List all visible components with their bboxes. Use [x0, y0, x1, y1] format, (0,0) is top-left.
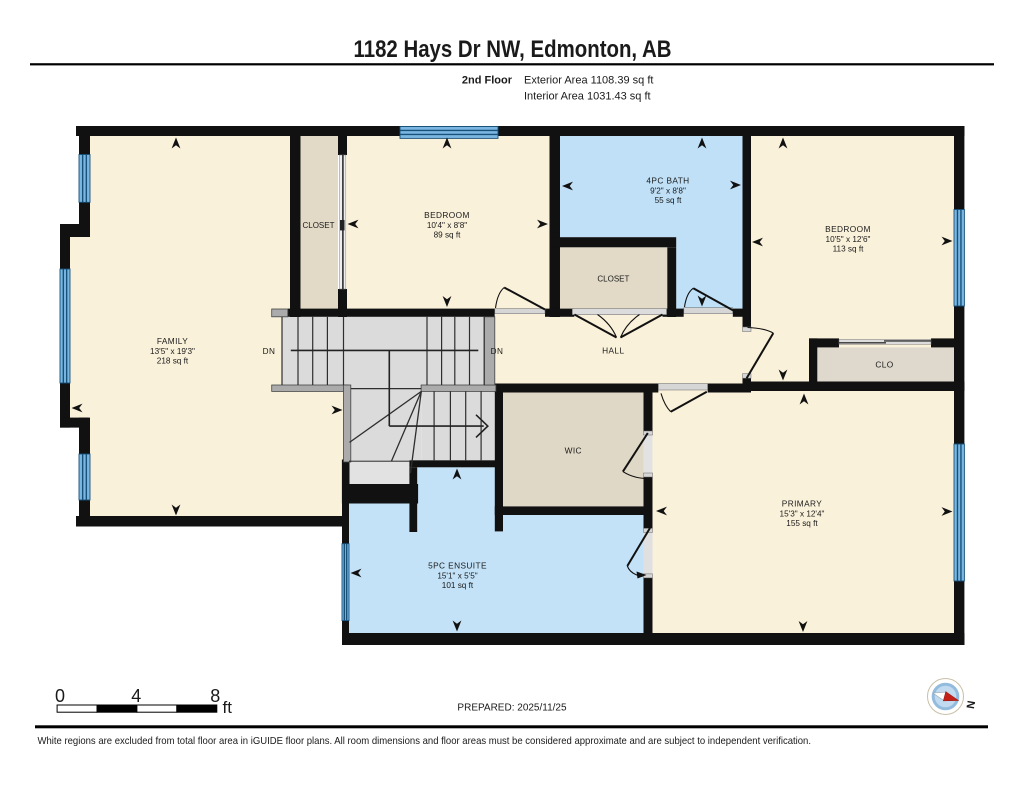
svg-text:155 sq ft: 155 sq ft — [786, 519, 818, 528]
svg-text:89 sq ft: 89 sq ft — [434, 231, 462, 240]
svg-text:ft: ft — [223, 698, 233, 717]
svg-text:HALL: HALL — [602, 346, 624, 356]
svg-text:15'1" x 5'5": 15'1" x 5'5" — [437, 572, 477, 581]
svg-text:218 sq ft: 218 sq ft — [157, 357, 189, 366]
svg-text:5PC ENSUITE: 5PC ENSUITE — [428, 561, 487, 571]
svg-text:PRIMARY: PRIMARY — [782, 499, 823, 509]
svg-text:2nd Floor: 2nd Floor — [462, 75, 513, 87]
svg-text:10'5" x 12'6": 10'5" x 12'6" — [826, 235, 871, 244]
svg-text:15'3" x 12'4": 15'3" x 12'4" — [780, 510, 825, 519]
svg-text:13'5" x 19'3": 13'5" x 19'3" — [150, 347, 195, 356]
svg-text:113 sq ft: 113 sq ft — [833, 245, 865, 254]
svg-text:FAMILY: FAMILY — [157, 336, 188, 346]
svg-text:101 sq ft: 101 sq ft — [442, 581, 474, 590]
svg-text:CLO: CLO — [875, 360, 893, 370]
svg-text:Interior Area 1031.43 sq ft: Interior Area 1031.43 sq ft — [524, 91, 651, 103]
svg-text:10'4" x 8'8": 10'4" x 8'8" — [427, 221, 467, 230]
svg-text:CLOSET: CLOSET — [597, 275, 629, 284]
svg-text:4PC BATH: 4PC BATH — [646, 176, 689, 186]
svg-text:8: 8 — [210, 686, 220, 706]
svg-text:DN: DN — [263, 347, 276, 356]
svg-text:9'2" x 8'8": 9'2" x 8'8" — [650, 187, 686, 196]
svg-text:BEDROOM: BEDROOM — [424, 210, 470, 220]
svg-text:White regions are excluded fro: White regions are excluded from total fl… — [38, 736, 812, 747]
svg-text:Exterior Area 1108.39 sq ft: Exterior Area 1108.39 sq ft — [524, 75, 653, 87]
svg-text:0: 0 — [55, 686, 65, 706]
svg-text:55 sq ft: 55 sq ft — [655, 196, 683, 205]
svg-text:BEDROOM: BEDROOM — [825, 224, 871, 234]
svg-text:DN: DN — [491, 347, 504, 356]
svg-text:1182 Hays Dr NW, Edmonton, AB: 1182 Hays Dr NW, Edmonton, AB — [354, 36, 672, 63]
svg-text:CLOSET: CLOSET — [302, 221, 334, 230]
svg-text:WIC: WIC — [565, 446, 582, 456]
svg-text:PREPARED: 2025/11/25: PREPARED: 2025/11/25 — [457, 703, 567, 714]
svg-text:4: 4 — [131, 686, 141, 706]
